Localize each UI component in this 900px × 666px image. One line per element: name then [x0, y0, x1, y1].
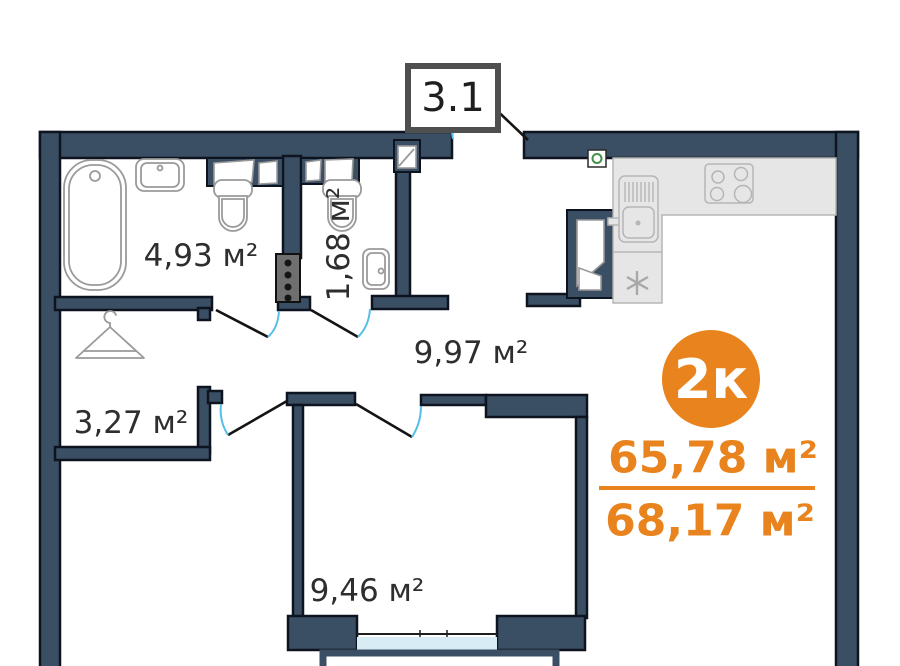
stove-icon [705, 164, 753, 203]
room-area-label-wardrobe: 3,27 м² [74, 405, 189, 441]
ventilation-grille-icon [588, 150, 606, 167]
living-room-door [221, 401, 287, 435]
section-number-text: 3.1 [421, 75, 485, 121]
unit-type-badge: 2к [662, 330, 760, 428]
balcony [323, 653, 556, 666]
toilet-icon [214, 180, 252, 231]
bathroom-door [216, 310, 279, 337]
area-divider-line [599, 486, 815, 490]
window [288, 616, 585, 650]
room-area-label-bedroom: 9,46 м² [310, 573, 425, 609]
floor-plan: 4,93 м² 1,68 м² 9,97 м² 3,27 м² 9,46 м² … [0, 0, 900, 666]
area-main-label: 65,78 м² [608, 433, 818, 484]
utility-riser-icon [276, 254, 300, 302]
vent-shaft-icon [567, 210, 613, 298]
sink-icon [136, 159, 184, 191]
sink-icon [363, 249, 389, 289]
area-total-label: 68,17 м² [605, 496, 815, 547]
section-number-label: 3.1 [405, 63, 501, 133]
room-area-label-bathroom: 4,93 м² [144, 238, 259, 274]
wc-door [311, 309, 370, 337]
bathtub-icon [64, 160, 126, 290]
bedroom-door [356, 404, 421, 437]
hanger-icon [76, 311, 144, 358]
room-area-label-wc: 1,68 м² [321, 187, 357, 302]
room-area-label-hallway: 9,97 м² [414, 335, 529, 371]
